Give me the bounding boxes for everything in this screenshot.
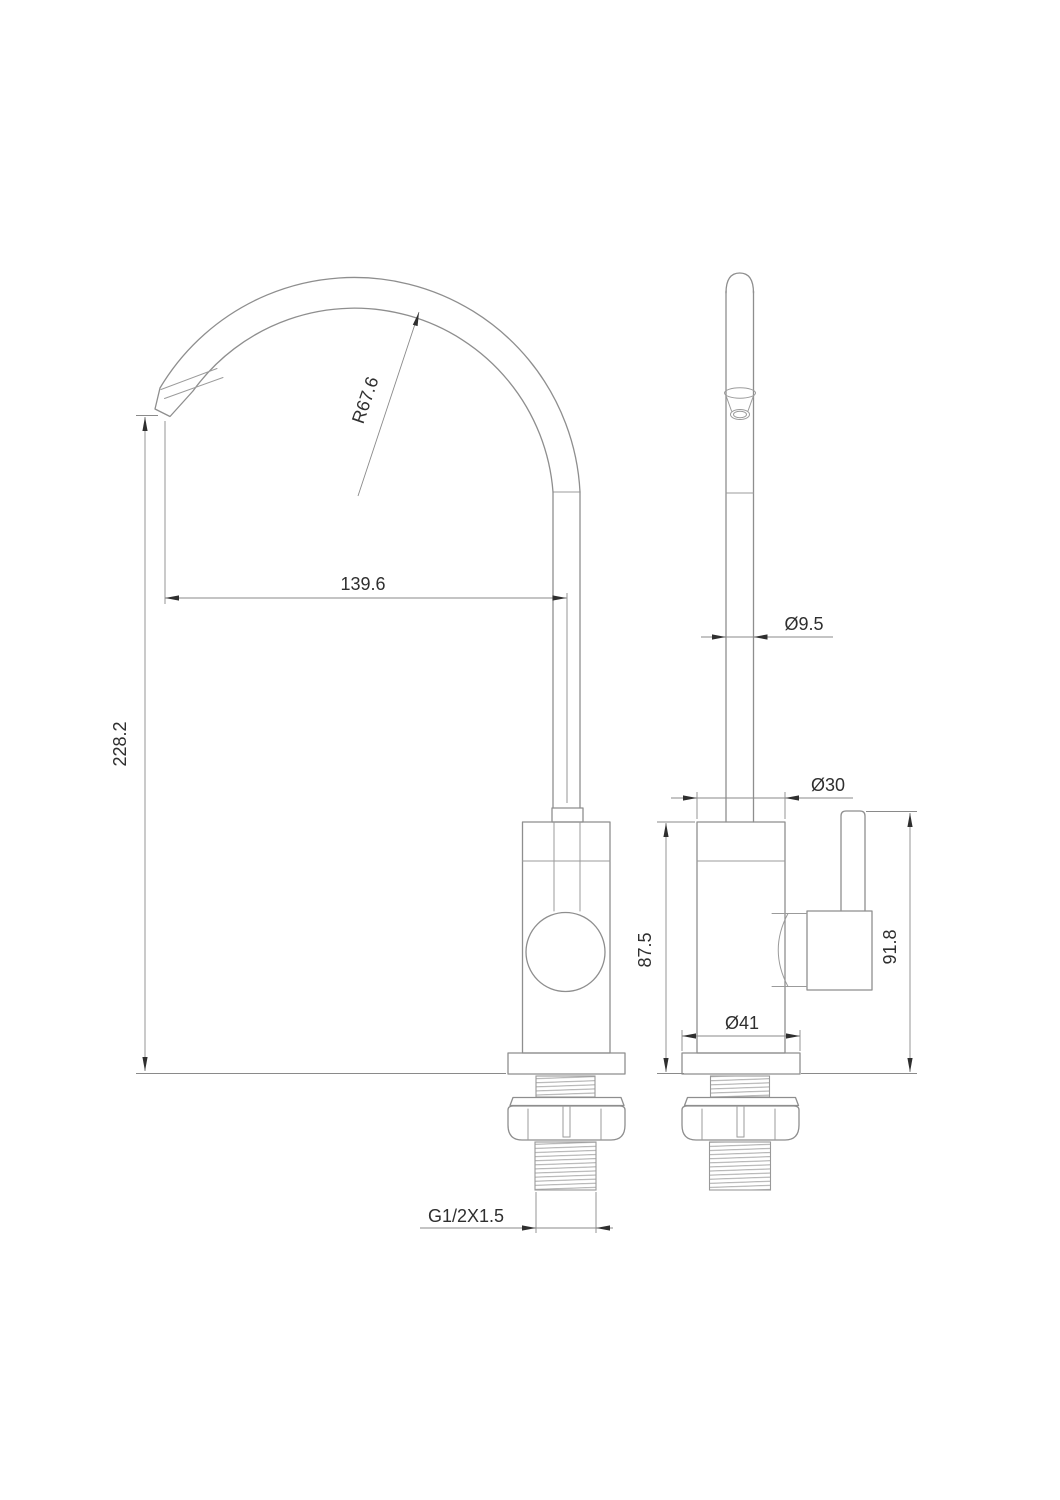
reach-arrow-right <box>553 595 567 600</box>
lever-rod-side <box>841 811 865 911</box>
tube-dia-arrow-right <box>754 634 768 639</box>
dim-handle-height: 91.8 <box>801 812 917 1074</box>
base-dia-arrow-right <box>786 1033 800 1038</box>
body-h-arrow-bottom <box>663 1058 668 1072</box>
base-dia-arrow-left <box>682 1033 696 1038</box>
spout-tip-band-1 <box>161 369 217 390</box>
dim-spout-radius: R67.6 <box>348 312 419 496</box>
dim-base-diameter-label: Ø41 <box>725 1013 759 1033</box>
mounting-nut-side <box>682 1106 799 1140</box>
spout-collar <box>552 808 583 822</box>
mounting-nut-front <box>508 1106 625 1140</box>
washer-front <box>510 1098 624 1106</box>
dim-spout-tube-diameter: Ø9.5 <box>701 614 833 640</box>
base-flange-front <box>508 1053 625 1074</box>
upper-thread-front <box>536 1076 595 1097</box>
dim-spout-radius-label: R67.6 <box>348 374 383 426</box>
body-h-arrow-top <box>663 823 668 837</box>
dim-spout-reach: 139.6 <box>165 421 567 803</box>
faucet-technical-drawing: R67.6 139.6 228.2 Ø9.5 <box>0 0 1060 1500</box>
knob-body-intersection-arc <box>778 914 788 987</box>
reach-arrow-left <box>165 595 179 600</box>
valve-knob-side <box>807 911 872 990</box>
height-arrow-bottom <box>142 1057 147 1071</box>
body-front <box>523 822 611 1053</box>
dim-overall-height: 228.2 <box>110 416 506 1074</box>
shank-thread-front <box>535 1142 596 1190</box>
washer-side <box>685 1098 799 1106</box>
aerator-outlet-inner <box>734 411 747 417</box>
radius-arrowhead <box>413 312 419 326</box>
dim-body-diameter-label: Ø30 <box>811 775 845 795</box>
height-arrow-top <box>142 417 147 431</box>
base-flange-side <box>682 1053 800 1074</box>
dim-body-diameter: Ø30 <box>671 775 853 819</box>
aerator-cone-right <box>748 397 753 411</box>
aerator-cone-left <box>727 397 732 411</box>
spout-tip-band-2 <box>165 378 224 399</box>
dim-spout-tube-diameter-label: Ø9.5 <box>784 614 823 634</box>
body-dia-arrow-right <box>785 795 799 800</box>
dim-handle-height-label: 91.8 <box>880 929 900 964</box>
front-view <box>155 277 625 1190</box>
tube-cap-side <box>726 273 754 293</box>
upper-thread-side <box>711 1076 770 1097</box>
dimensions: R67.6 139.6 228.2 Ø9.5 <box>110 312 917 1233</box>
aerator-ring <box>725 388 756 398</box>
dim-base-diameter: Ø41 <box>682 1013 800 1051</box>
thread-arrow-right <box>596 1225 610 1230</box>
dim-spout-reach-label: 139.6 <box>340 574 385 594</box>
body-dia-arrow-left <box>683 795 697 800</box>
shank-thread-side <box>710 1142 771 1190</box>
dim-thread-spec: G1/2X1.5 <box>420 1192 613 1233</box>
dim-body-height-label: 87.5 <box>635 932 655 967</box>
tube-dia-arrow-left <box>712 634 726 639</box>
dim-thread-spec-label: G1/2X1.5 <box>428 1206 504 1226</box>
handle-h-arrow-bottom <box>907 1058 912 1072</box>
thread-arrow-left <box>522 1225 536 1230</box>
valve-knob-circle <box>526 913 605 992</box>
drawing-sheet: R67.6 139.6 228.2 Ø9.5 <box>0 0 1060 1500</box>
handle-h-arrow-top <box>907 813 912 827</box>
dim-overall-height-label: 228.2 <box>110 721 130 766</box>
side-view <box>682 273 872 1190</box>
